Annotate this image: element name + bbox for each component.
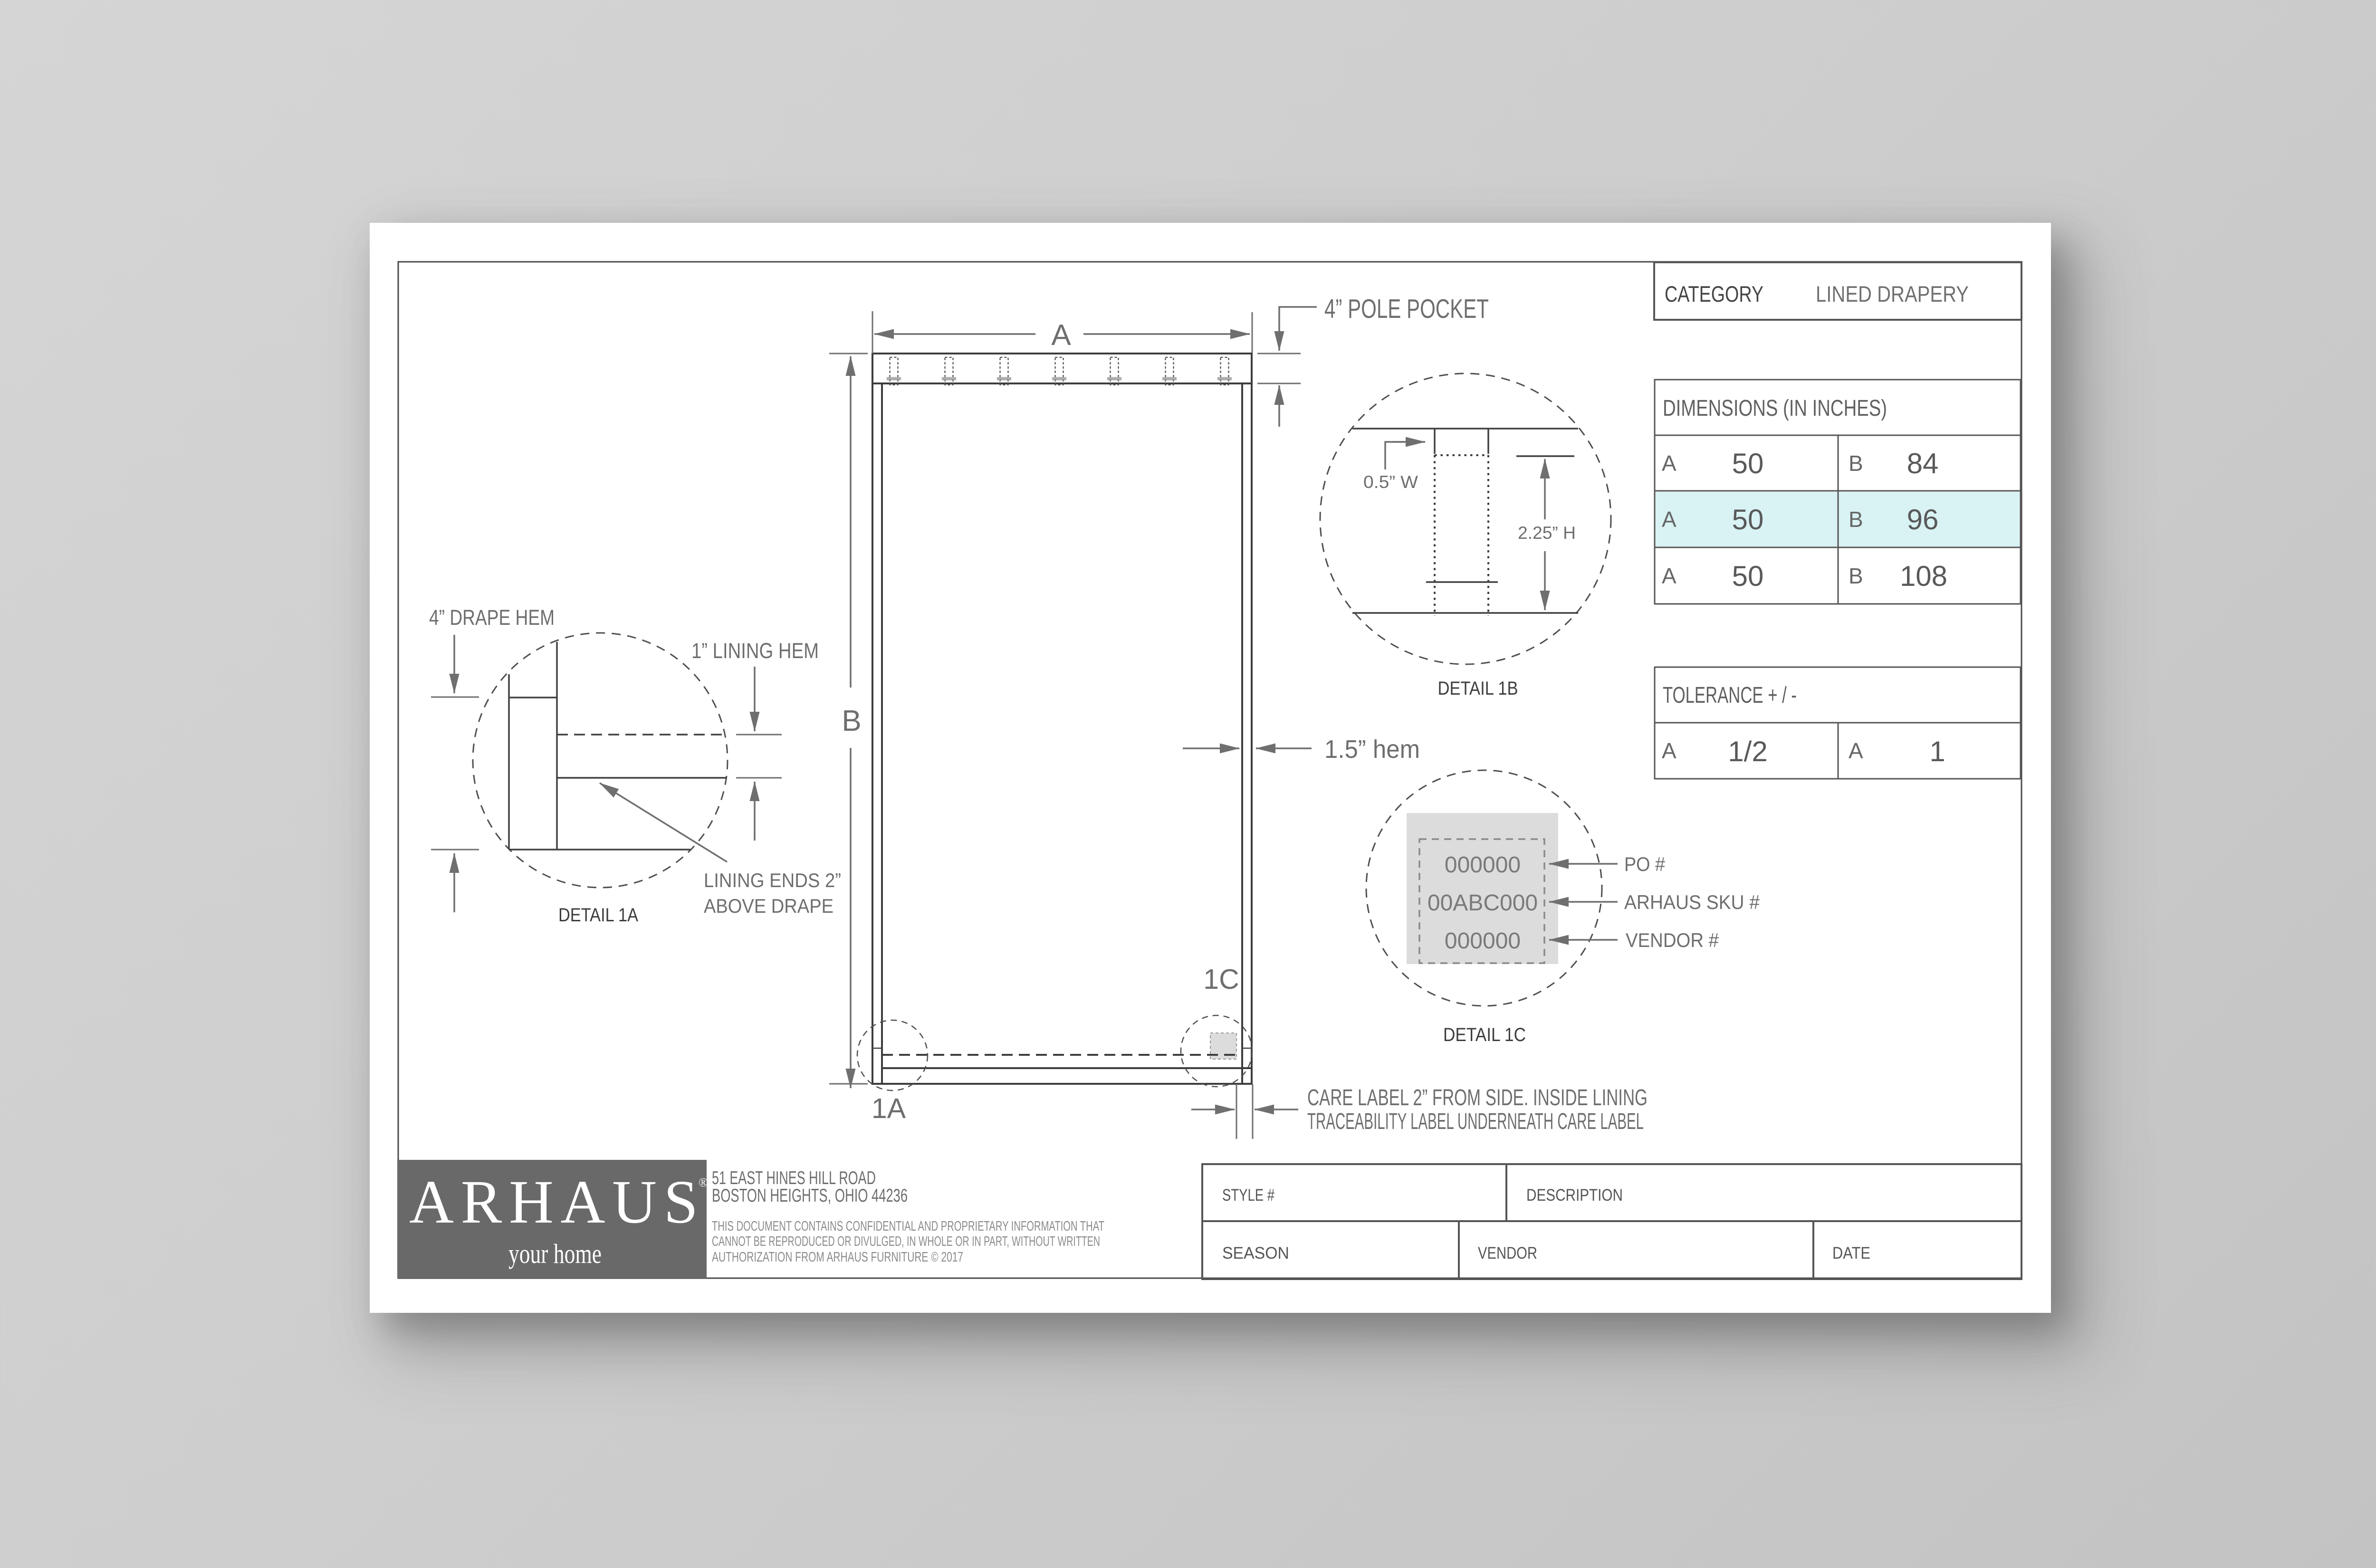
svg-text:1: 1 xyxy=(1929,736,1945,767)
svg-text:A: A xyxy=(1662,451,1677,476)
svg-text:1” LINING HEM: 1” LINING HEM xyxy=(691,639,819,663)
svg-text:2.25” H: 2.25” H xyxy=(1518,523,1576,543)
svg-text:®: ® xyxy=(699,1176,708,1189)
svg-text:0.5” W: 0.5” W xyxy=(1363,472,1418,492)
svg-text:000000: 000000 xyxy=(1445,852,1521,878)
svg-text:1A: 1A xyxy=(872,1093,906,1124)
svg-text:4” POLE POCKET: 4” POLE POCKET xyxy=(1324,294,1489,324)
svg-text:THIS DOCUMENT CONTAINS CONFIDE: THIS DOCUMENT CONTAINS CONFIDENTIAL AND … xyxy=(712,1219,1104,1234)
svg-text:108: 108 xyxy=(1900,560,1947,592)
svg-text:TOLERANCE + / -: TOLERANCE + / - xyxy=(1663,683,1797,708)
svg-text:A: A xyxy=(1662,564,1677,588)
svg-text:LINED DRAPERY: LINED DRAPERY xyxy=(1816,281,1969,306)
svg-text:ABOVE DRAPE: ABOVE DRAPE xyxy=(704,895,834,917)
svg-text:DIMENSIONS (IN INCHES): DIMENSIONS (IN INCHES) xyxy=(1663,396,1887,421)
svg-text:A: A xyxy=(1849,738,1863,763)
svg-text:VENDOR #: VENDOR # xyxy=(1626,929,1719,951)
svg-text:B: B xyxy=(842,705,861,737)
svg-text:CARE LABEL 2” FROM SIDE. INSID: CARE LABEL 2” FROM SIDE. INSIDE LINING xyxy=(1307,1085,1648,1110)
svg-text:DATE: DATE xyxy=(1832,1244,1870,1262)
svg-text:50: 50 xyxy=(1732,504,1764,535)
svg-text:DESCRIPTION: DESCRIPTION xyxy=(1526,1186,1623,1205)
svg-text:B: B xyxy=(1849,507,1863,532)
svg-text:BOSTON HEIGHTS, OHIO 44236: BOSTON HEIGHTS, OHIO 44236 xyxy=(712,1186,908,1206)
svg-text:DETAIL 1B: DETAIL 1B xyxy=(1438,678,1518,699)
svg-text:A: A xyxy=(1662,738,1677,763)
svg-text:B: B xyxy=(1849,564,1863,588)
svg-text:CANNOT BE REPRODUCED OR DIVULG: CANNOT BE REPRODUCED OR DIVULGED, IN WHO… xyxy=(712,1234,1100,1249)
svg-text:00ABC000: 00ABC000 xyxy=(1428,890,1538,916)
svg-text:VENDOR: VENDOR xyxy=(1478,1244,1537,1262)
svg-text:DETAIL 1C: DETAIL 1C xyxy=(1443,1024,1526,1045)
svg-text:A: A xyxy=(1051,319,1071,352)
svg-text:SEASON: SEASON xyxy=(1222,1244,1289,1262)
svg-text:4” DRAPE HEM: 4” DRAPE HEM xyxy=(429,605,555,630)
svg-text:TRACEABILITY LABEL UNDERNEATH: TRACEABILITY LABEL UNDERNEATH CARE LABEL xyxy=(1307,1109,1644,1134)
svg-text:50: 50 xyxy=(1732,560,1764,592)
svg-text:84: 84 xyxy=(1907,448,1939,479)
svg-text:AUTHORIZATION FROM ARHAUS FURN: AUTHORIZATION FROM ARHAUS FURNITURE © 20… xyxy=(712,1250,963,1265)
svg-text:DETAIL 1A: DETAIL 1A xyxy=(558,905,638,926)
svg-text:your home: your home xyxy=(508,1238,602,1269)
svg-text:A: A xyxy=(1662,507,1677,532)
svg-text:ARHAUS SKU #: ARHAUS SKU # xyxy=(1624,891,1760,913)
svg-text:000000: 000000 xyxy=(1445,928,1521,954)
svg-text:LINING ENDS 2”: LINING ENDS 2” xyxy=(704,869,841,891)
svg-text:50: 50 xyxy=(1732,448,1764,479)
svg-text:96: 96 xyxy=(1907,504,1939,535)
svg-text:1.5” hem: 1.5” hem xyxy=(1324,735,1420,764)
svg-text:1C: 1C xyxy=(1203,964,1239,995)
svg-text:STYLE #: STYLE # xyxy=(1222,1186,1274,1205)
svg-text:B: B xyxy=(1849,451,1863,476)
svg-text:PO #: PO # xyxy=(1624,853,1666,875)
svg-text:CATEGORY: CATEGORY xyxy=(1665,281,1763,306)
svg-text:1/2: 1/2 xyxy=(1728,736,1767,767)
